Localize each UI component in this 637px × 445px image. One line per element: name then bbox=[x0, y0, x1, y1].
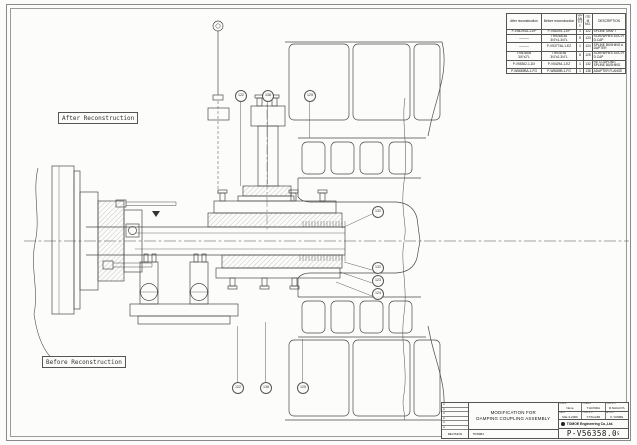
table-row: ——— TRN-6A/3A 3/4"x1-3/4"L 8 123 SCREW:H… bbox=[507, 34, 626, 43]
part-after: P-V55302-1-DX bbox=[507, 60, 542, 69]
scale-label: SCALE bbox=[559, 403, 566, 405]
left-flange-drawing bbox=[33, 166, 176, 366]
after-reconstruction-label: After Reconstruction bbox=[58, 112, 138, 124]
part-qty: 8 bbox=[577, 52, 584, 61]
col-header-after: After reconstruction bbox=[507, 14, 542, 30]
title-block-info: SCALE None DRAWN T.HONDA CHECK'D R.NAGOY… bbox=[559, 403, 628, 438]
table-row: P-V55302-1-DX P-V5429A-1-EZ 1 132 RE COU… bbox=[507, 60, 626, 69]
part-after: TRN-6A/B 3/4"x2"L bbox=[507, 52, 542, 61]
part-item: 124 bbox=[584, 43, 593, 52]
company-name: TOMOE Engineering Co.,Ltd. bbox=[567, 422, 613, 426]
part-after: P-W5669BA-1-FG bbox=[507, 69, 542, 74]
revision-label: REVISION bbox=[442, 430, 468, 438]
drawing-number: P-V56358.0S bbox=[559, 429, 628, 438]
part-before: TRN-6/3B 3/4"x2-3/4"L bbox=[542, 52, 577, 61]
part-qty: 1 bbox=[577, 69, 584, 74]
part-before: P-W5669B-1-FG bbox=[542, 69, 577, 74]
balloon-callout: 132 bbox=[372, 262, 384, 274]
title-block: A A A A A A REVISION MODIFICATION FOR DA… bbox=[441, 402, 629, 439]
after-coupling-drawing bbox=[208, 21, 342, 227]
part-before: TRN-6A/3A 3/4"x1-3/4"L bbox=[542, 34, 577, 43]
checked2-value: T.TAGAMI bbox=[582, 416, 604, 419]
part-item: 123 bbox=[584, 34, 593, 43]
approved-value: K.YANBE bbox=[606, 416, 628, 419]
part-description: SCREW:HEX.SOC.HD.CAP bbox=[593, 34, 626, 43]
balloon-callout: 122 bbox=[235, 90, 247, 102]
drawing-number-value: P-V56358.0 bbox=[567, 429, 617, 438]
part-before: P-V5429A-1-EZ bbox=[542, 60, 577, 69]
part-description: SCREW:HEX.SOC.HD.CAP bbox=[593, 52, 626, 61]
col-header-before: Before reconstruction bbox=[542, 14, 577, 30]
checked-value: R.NAGOYA bbox=[606, 407, 628, 410]
part-item: 132 bbox=[584, 60, 593, 69]
drawing-title-cell: MODIFICATION FOR DAMPING COUPLING ASSEMB… bbox=[469, 403, 559, 438]
part-qty: 8 bbox=[577, 34, 584, 43]
checked2-cell: CHECK'D T.TAGAMI bbox=[582, 412, 605, 420]
tomoe-logo-icon bbox=[561, 422, 566, 427]
part-description: SPLINE BUSHING ADAPTER bbox=[593, 43, 626, 52]
housing-vent-slots bbox=[302, 142, 412, 333]
before-reconstruction-label: Before Reconstruction bbox=[42, 356, 126, 368]
part-before: P-V53773A-1-EZ bbox=[542, 43, 577, 52]
col-header-item: ITEM NO. bbox=[584, 14, 593, 30]
balloon-callout: 132 bbox=[372, 206, 384, 218]
col-header-qty: QUAN TITY bbox=[577, 14, 584, 30]
approved-label: APPR'D bbox=[606, 412, 614, 414]
balloon-callout: 124 bbox=[372, 288, 384, 300]
part-qty: 1 bbox=[577, 60, 584, 69]
revision-column: A A A A A A REVISION bbox=[442, 403, 469, 438]
balloon-callout: 123 bbox=[372, 275, 384, 287]
drawing-title-line2: DAMPING COUPLING ASSEMBLY bbox=[476, 416, 550, 422]
scale-value: None bbox=[559, 407, 581, 410]
table-row: TRN-6A/B 3/4"x2"L TRN-6/3B 3/4"x2-3/4"L … bbox=[507, 52, 626, 61]
drawing-number-suffix: S bbox=[617, 432, 620, 436]
company-logo-row: TOMOE Engineering Co.,Ltd. bbox=[559, 420, 628, 429]
date-value: Mar-3-2009 bbox=[559, 416, 581, 419]
drawing-sheet: After Reconstruction Before Reconstructi… bbox=[0, 0, 637, 445]
checked-cell: CHECK'D R.NAGOYA bbox=[606, 403, 628, 411]
checked-label: CHECK'D bbox=[606, 403, 616, 405]
part-qty: 1 bbox=[577, 43, 584, 52]
doc-code: TRN084 bbox=[469, 429, 558, 438]
balloon-callout: 125 bbox=[297, 382, 309, 394]
part-description: RE COUPLING SPLINE BUSHING bbox=[593, 60, 626, 69]
drawn-value: T.HONDA bbox=[582, 407, 604, 410]
part-after: ——— bbox=[507, 34, 542, 43]
balloon-callout: 138 bbox=[260, 382, 272, 394]
part-item: 125 bbox=[584, 52, 593, 61]
part-after: ——— bbox=[507, 43, 542, 52]
table-row: ——— P-V53773A-1-EZ 1 124 SPLINE BUSHING … bbox=[507, 43, 626, 52]
balloon-callout: 125 bbox=[304, 90, 316, 102]
scale-cell: SCALE None bbox=[559, 403, 582, 411]
checked2-label: CHECK'D bbox=[583, 412, 593, 414]
col-header-description: DESCRIPTION bbox=[593, 14, 626, 30]
date-label: DATE bbox=[559, 412, 565, 414]
parts-table: After reconstruction Before reconstructi… bbox=[506, 13, 625, 74]
balloon-callout: 122 bbox=[232, 382, 244, 394]
balloon-callout: 138 bbox=[262, 90, 274, 102]
parts-table-header-row: After reconstruction Before reconstructi… bbox=[507, 14, 626, 30]
part-description: ADAPTER FLANGE bbox=[593, 69, 626, 74]
before-coupling-drawing bbox=[130, 254, 342, 324]
drawn-cell: DRAWN T.HONDA bbox=[582, 403, 605, 411]
part-item: 138 bbox=[584, 69, 593, 74]
approved-cell: APPR'D K.YANBE bbox=[606, 412, 628, 420]
drawn-label: DRAWN bbox=[583, 403, 591, 405]
table-row: P-W5669BA-1-FG P-W5669B-1-FG 1 138 ADAPT… bbox=[507, 69, 626, 74]
date-cell: DATE Mar-3-2009 bbox=[559, 412, 582, 420]
top-housing-drawing bbox=[285, 42, 444, 241]
